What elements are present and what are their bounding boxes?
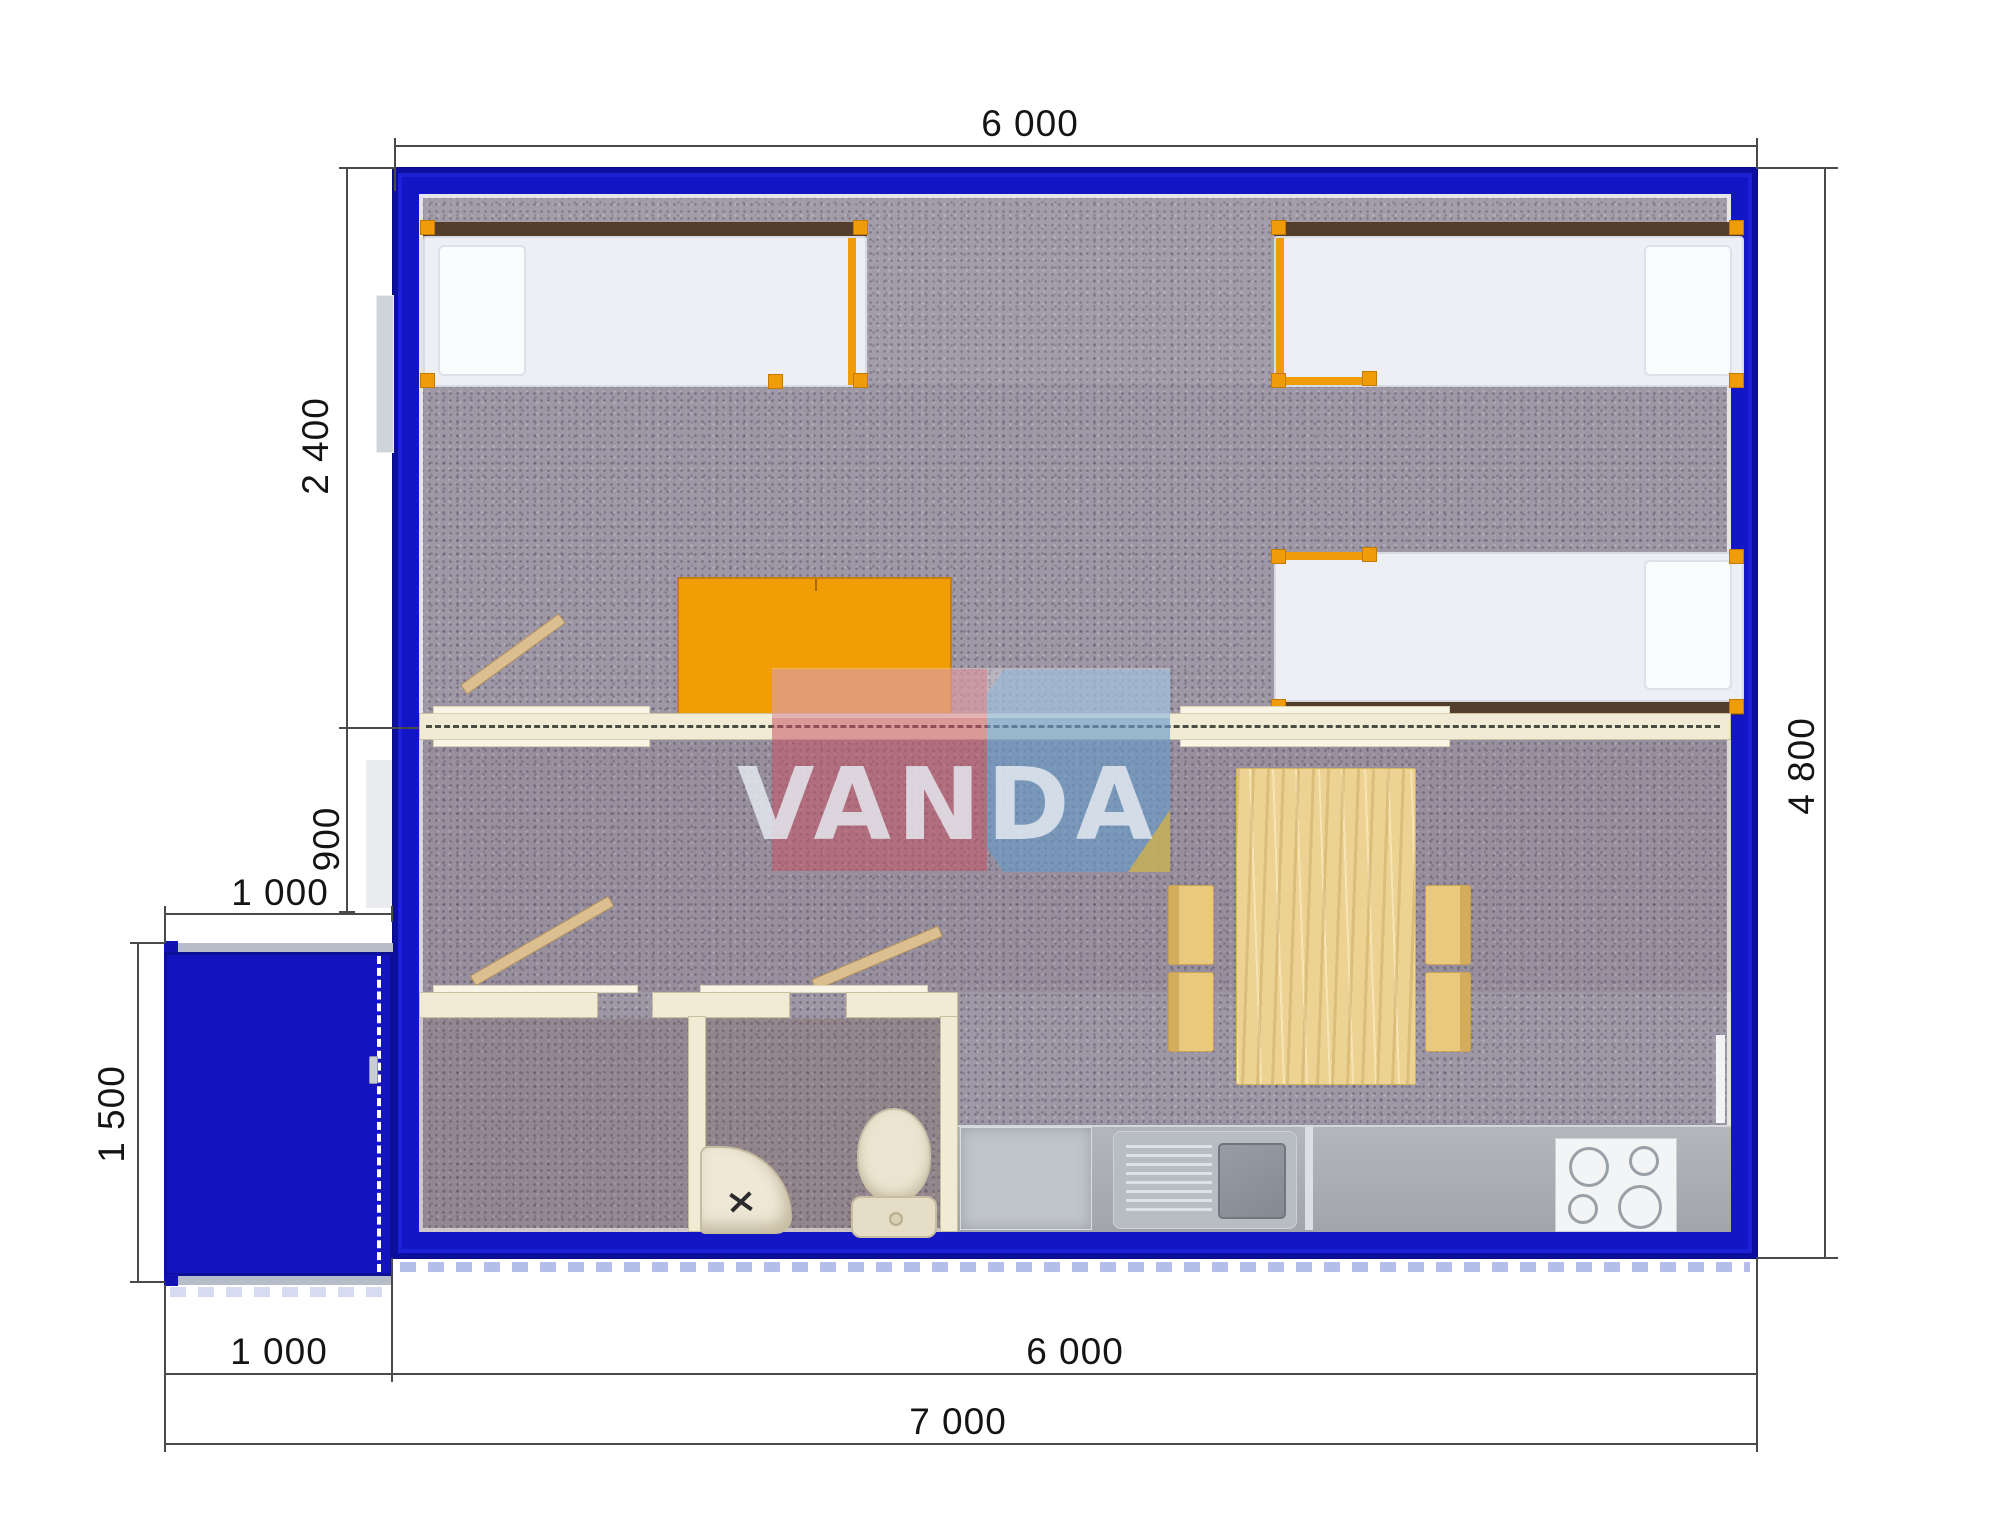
extension-line (1756, 145, 1758, 169)
extension-line (137, 1281, 165, 1283)
sink-unit (1113, 1131, 1297, 1229)
kitchen-appliance (960, 1127, 1092, 1230)
window-right-wall (1716, 1035, 1725, 1123)
pillow (1644, 245, 1732, 376)
dim-line-bedroom-depth (346, 168, 348, 728)
extension-line (346, 167, 394, 169)
bed-single-top-right (1274, 236, 1744, 387)
partition-door-jamb (1180, 739, 1450, 747)
porch-corner-block (164, 1274, 178, 1286)
dining-chair (1425, 972, 1471, 1052)
partition-door-jamb (433, 706, 650, 714)
siding-dashes-porch (170, 1287, 386, 1297)
stove-cooktop (1555, 1138, 1677, 1232)
dim-line-total-width (165, 1443, 1757, 1445)
bed-single-mid-right (1274, 552, 1744, 702)
dim-main-width-bottom: 6 000 (975, 1331, 1175, 1373)
bed-frame-post (1271, 549, 1286, 564)
dining-chair (1168, 972, 1214, 1052)
dim-top-width: 6 000 (930, 103, 1130, 145)
extension-line (137, 942, 165, 944)
stove-burner (1568, 1194, 1598, 1224)
bed-frame-post (1271, 220, 1286, 235)
dim-line-bottom-row1 (165, 1373, 1757, 1375)
bed-foot-rail (1276, 238, 1284, 385)
bed-frame-post (1729, 549, 1744, 564)
counter-divider-strip (1305, 1127, 1313, 1230)
dim-porch-width-bottom: 1 000 (179, 1331, 379, 1373)
toilet-lid (857, 1108, 931, 1202)
porch-door-dashed-line (377, 956, 381, 1272)
dim-porch-height: 1 500 (91, 1014, 133, 1214)
partition-wall (419, 713, 1731, 740)
bed-frame-post (420, 220, 435, 235)
extension-line (394, 145, 396, 191)
desk-seam (815, 579, 817, 591)
toilet (848, 1108, 940, 1238)
extension-line (1757, 1257, 1838, 1259)
dim-line-right-height (1824, 168, 1826, 1258)
partition-door-jamb (1180, 706, 1450, 714)
bed-foot-rail (848, 238, 856, 385)
bed-single-top-left (423, 236, 867, 387)
bed-frame-post (1271, 373, 1286, 388)
pillow (438, 245, 526, 376)
extension-line (346, 727, 419, 729)
porch-body (164, 952, 393, 1276)
extension-line (164, 1285, 166, 1445)
extension-line (1756, 1258, 1758, 1445)
dim-total-width: 7 000 (858, 1401, 1058, 1443)
stove-burner (1569, 1147, 1609, 1187)
kitchen-counter (958, 1125, 1731, 1232)
extension-line (164, 913, 166, 943)
porch-roof-edge-bottom (164, 1276, 393, 1285)
bed-frame-post (1362, 547, 1377, 562)
floor-plan-canvas: VANDA 6 000 4 800 2 400 900 1 000 1 500 (0, 0, 2000, 1537)
bed-frame-post (1729, 220, 1744, 235)
bed-frame-post (1729, 373, 1744, 388)
bathroom-wall-right (940, 1016, 958, 1232)
dim-right-height: 4 800 (1781, 666, 1823, 866)
sink-drainboard (1126, 1145, 1212, 1217)
desk-orange (677, 577, 952, 716)
partition-door-jamb (433, 739, 650, 747)
bathroom-wall-top (419, 992, 598, 1018)
dining-chair (1425, 885, 1471, 965)
bed-side-rail (1276, 552, 1372, 560)
toilet-tank (851, 1196, 937, 1238)
bed-frame-post (420, 373, 435, 388)
sink-basin (1218, 1143, 1286, 1219)
siding-dashes-bottom (400, 1262, 1750, 1272)
dining-table (1236, 768, 1416, 1085)
bathroom-wall-top (846, 992, 958, 1018)
dining-chair (1168, 885, 1214, 965)
stove-burner (1629, 1146, 1659, 1176)
door-handle (369, 1056, 378, 1084)
bed-frame-post (1729, 699, 1744, 714)
porch-roof-edge-top (164, 943, 393, 952)
toilet-flush-button (889, 1212, 903, 1226)
extension-line (391, 1258, 393, 1373)
bathroom-wall-top (652, 992, 790, 1018)
window-left-wall (376, 295, 394, 453)
partition-dashed-centerline (426, 725, 1720, 728)
bed-headboard-shelf (423, 222, 867, 236)
extension-line (1757, 167, 1838, 169)
pillow (1644, 560, 1732, 690)
dim-line-porch-height (137, 943, 139, 1283)
bed-frame-post (853, 220, 868, 235)
stove-burner (1618, 1185, 1662, 1229)
dim-line-top-width (395, 145, 1757, 147)
bed-frame-post (768, 374, 783, 389)
bed-headboard-shelf (1274, 222, 1744, 236)
bed-side-rail (1276, 377, 1372, 385)
bed-frame-post (1362, 371, 1377, 386)
bed-frame-post (853, 373, 868, 388)
dim-porch-width-top: 1 000 (180, 872, 380, 914)
dim-bedroom-depth: 2 400 (295, 346, 337, 546)
